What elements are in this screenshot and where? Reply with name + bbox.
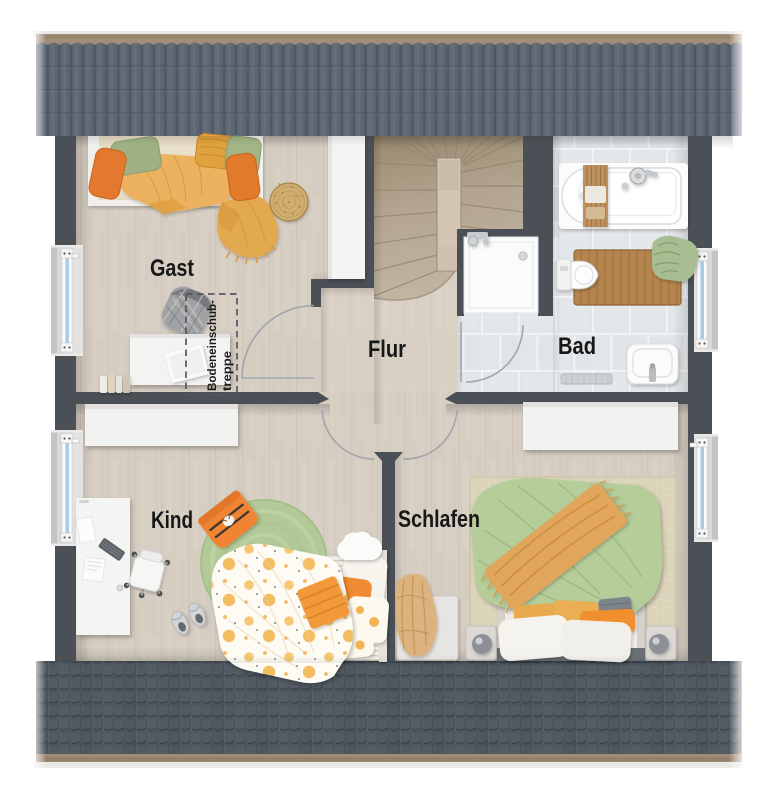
svg-text:Flur: Flur bbox=[368, 336, 406, 363]
svg-text:treppe: treppe bbox=[220, 351, 234, 391]
svg-text:Kind: Kind bbox=[151, 507, 193, 534]
svg-text:Bad: Bad bbox=[558, 333, 596, 360]
svg-text:Schlafen: Schlafen bbox=[398, 506, 480, 533]
svg-text:Bodeneinschub-: Bodeneinschub- bbox=[205, 300, 219, 391]
svg-text:Gast: Gast bbox=[150, 255, 194, 282]
